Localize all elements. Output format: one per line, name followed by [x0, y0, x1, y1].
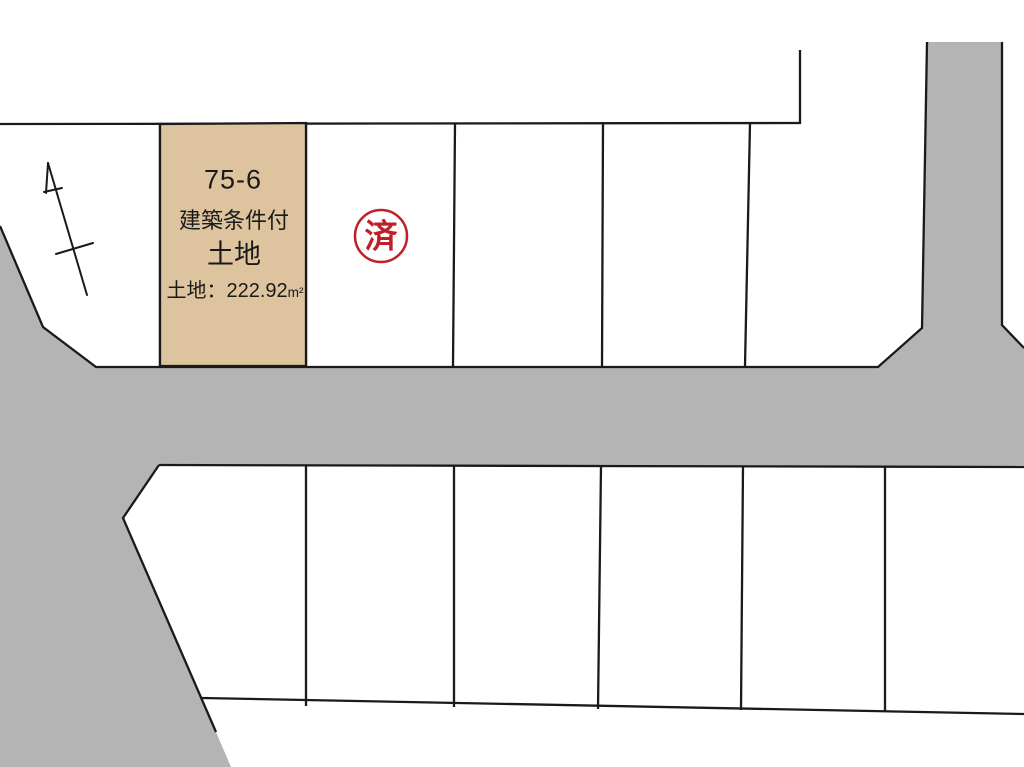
plot-75-6-category: 土地	[207, 242, 261, 269]
plot-75-6-area: 土地：222.92m²	[166, 281, 303, 301]
road-right-border	[1002, 42, 1024, 348]
plot-75-6-condition: 建築条件付	[179, 210, 289, 232]
plot-divider	[598, 466, 601, 709]
road-upper-border	[0, 42, 927, 367]
plot-75-6-area-unit: m²	[288, 285, 304, 300]
lot-subdivision-map: 75-6 建築条件付 土地 土地：222.92m² 済	[0, 0, 1024, 767]
road-area	[0, 42, 1024, 767]
plot-75-6-area-value: 土地：222.92	[166, 280, 287, 302]
plot-divider	[741, 466, 743, 710]
plot-divider	[745, 123, 750, 366]
plot-divider	[602, 123, 603, 366]
north-arrow-icon	[44, 163, 93, 295]
lower-row-bottom-boundary	[202, 698, 1024, 714]
plot-75-6-number: 75-6	[204, 167, 262, 194]
site-plan-drawing	[0, 0, 1024, 767]
sold-stamp-label: 済	[365, 220, 398, 253]
plot-divider	[453, 123, 455, 366]
upper-row-top-boundary	[0, 50, 800, 124]
